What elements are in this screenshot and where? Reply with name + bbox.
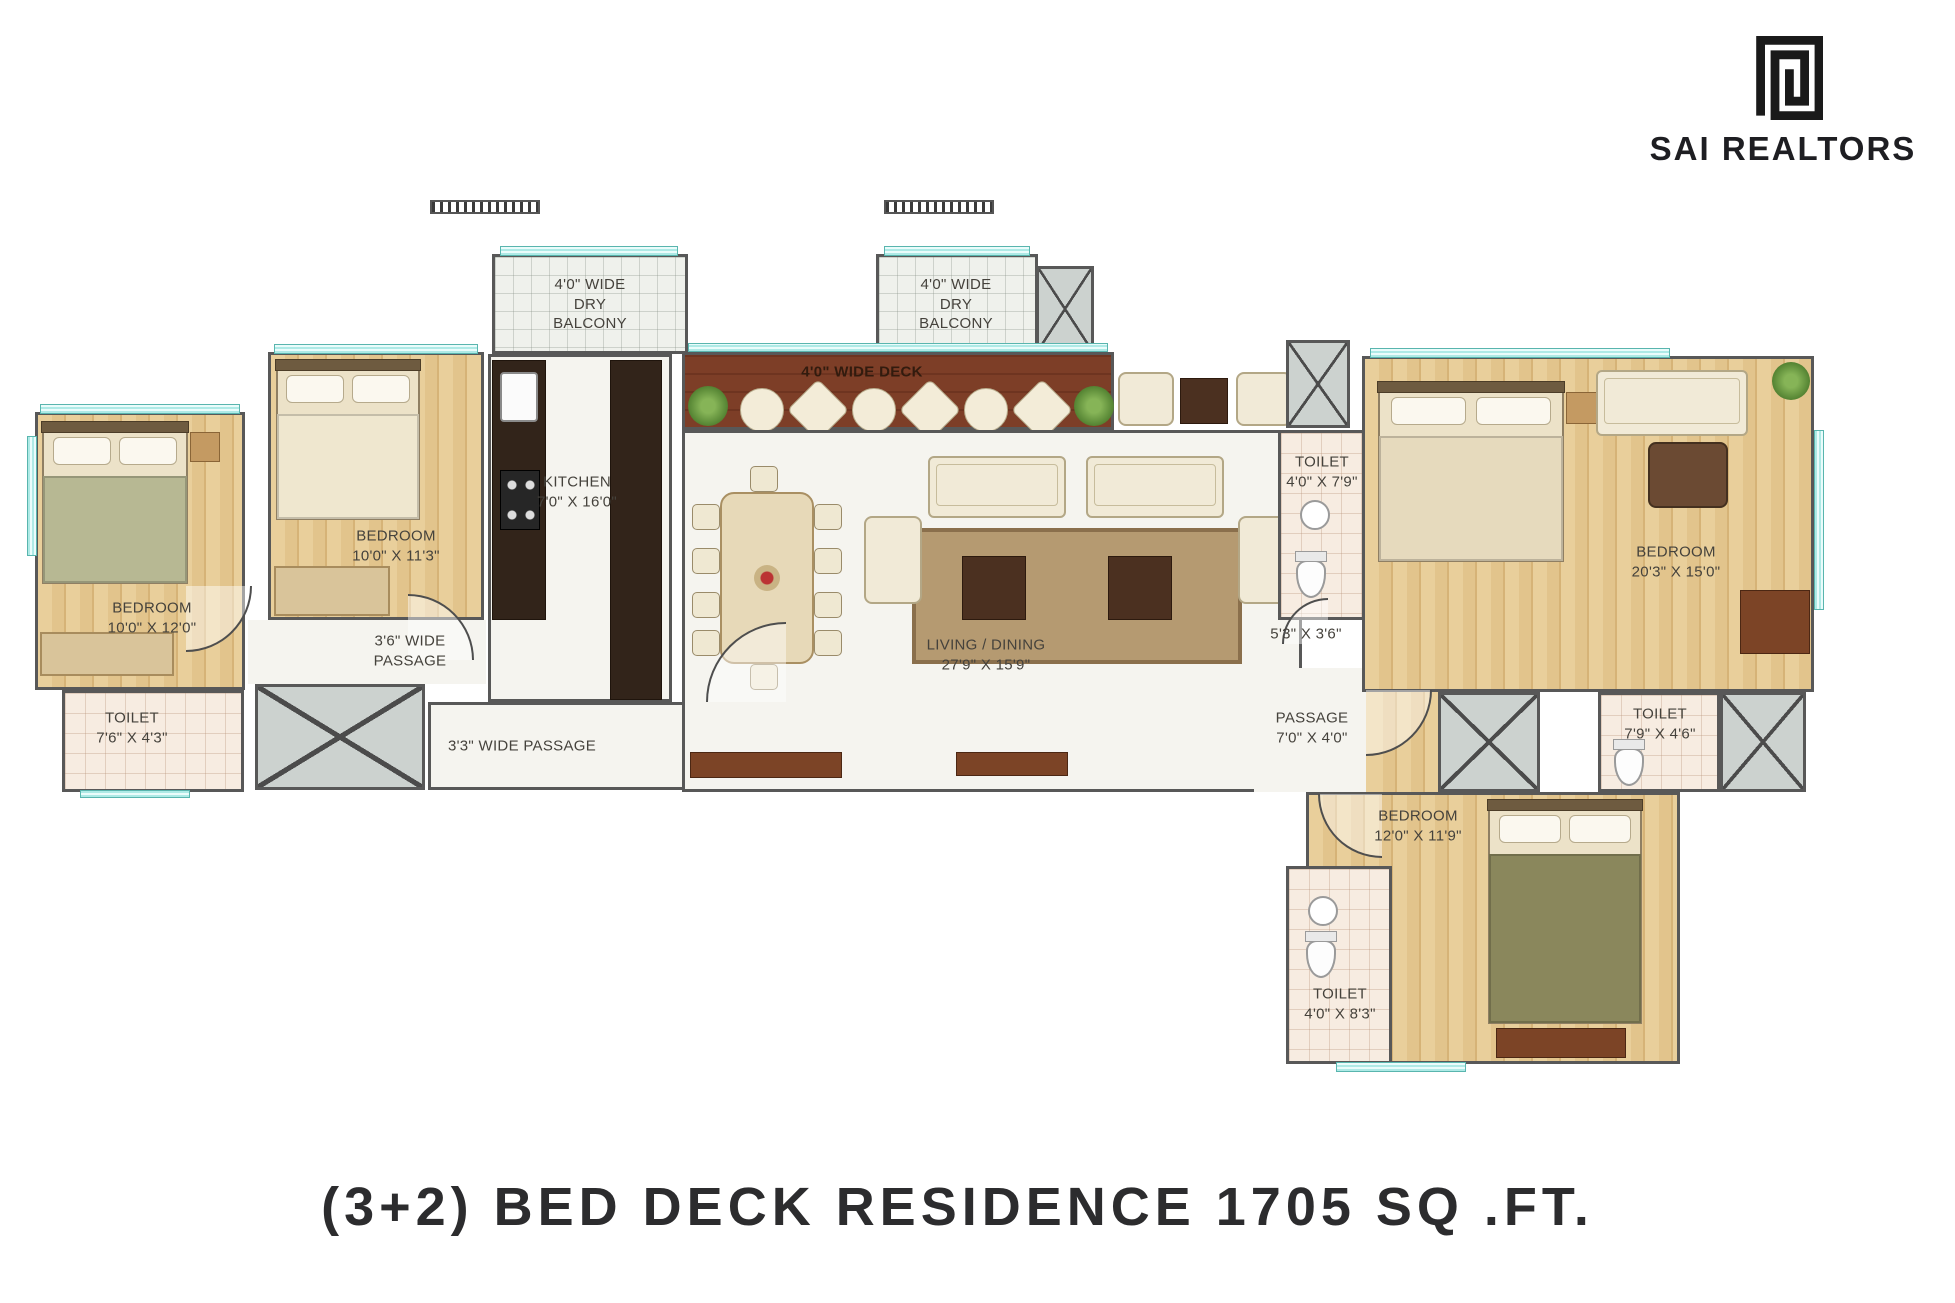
- bed-pillow: [352, 375, 410, 403]
- label-passage-right: PASSAGE 7'0" X 4'0": [1276, 709, 1349, 748]
- label-toilet-bottom: TOILET 4'0" X 8'3": [1304, 985, 1375, 1024]
- label-toilet-master: TOILET 4'0" X 7'9": [1286, 453, 1357, 492]
- wicker-chair: [1236, 372, 1292, 426]
- console-table: [956, 752, 1068, 776]
- sofa: [928, 456, 1066, 518]
- wardrobe: [274, 566, 390, 616]
- master-armchair: [1648, 442, 1728, 508]
- label-passage-36: 3'6" WIDE PASSAGE: [374, 632, 447, 671]
- window: [27, 436, 37, 556]
- deck-plant-left: [688, 386, 728, 426]
- bed-bottom: [1488, 806, 1642, 1024]
- bed-pillow: [119, 437, 178, 465]
- label-niche: 5'3" X 3'6": [1270, 624, 1341, 644]
- duct-top: [1036, 266, 1094, 352]
- label-living-dining: LIVING / DINING 27'9" X 15'9": [927, 636, 1046, 675]
- label-dry-balcony-right: 4'0" WIDE DRY BALCONY: [919, 275, 993, 334]
- dining-chair: [814, 548, 842, 574]
- coffee-table: [1108, 556, 1172, 620]
- washbasin: [1300, 500, 1330, 530]
- window: [1814, 430, 1824, 610]
- deck-cushion: [740, 388, 784, 432]
- dining-chair: [814, 630, 842, 656]
- bedside-table: [1566, 392, 1598, 424]
- lift-shaft-right: [1438, 692, 1540, 792]
- window: [688, 343, 1108, 352]
- window: [1336, 1062, 1466, 1072]
- bed-pillow: [53, 437, 112, 465]
- floor-plan-page: SAI REALTORS: [0, 0, 1955, 1303]
- bed-headboard: [1377, 381, 1565, 393]
- kitchen-counter-right: [610, 360, 662, 700]
- master-plant: [1772, 362, 1810, 400]
- bed-pillow: [286, 375, 344, 403]
- master-sofa: [1596, 370, 1748, 436]
- duct-mid: [1286, 340, 1350, 428]
- deck-plant-right: [1074, 386, 1114, 426]
- label-bedroom-left: BEDROOM 10'0" X 12'0": [108, 599, 197, 638]
- coffee-table: [962, 556, 1026, 620]
- sofa: [1086, 456, 1224, 518]
- lift-shaft-left: [255, 684, 425, 790]
- page-title: (3+2) BED DECK RESIDENCE 1705 SQ .FT.: [0, 1176, 1915, 1238]
- dining-chair: [692, 592, 720, 618]
- floor-plan: BEDROOM 10'0" X 12'0" TOILET 7'6" X 4'3"…: [0, 0, 1955, 1100]
- label-toilet-right: TOILET 7'9" X 4'6": [1624, 705, 1695, 744]
- bed-headboard: [41, 421, 189, 433]
- console-table: [690, 752, 842, 778]
- bed-headboard: [1487, 799, 1643, 811]
- window: [274, 344, 478, 354]
- bed-left: [42, 428, 188, 584]
- bed-blanket: [1379, 436, 1563, 561]
- wardrobe: [40, 632, 174, 676]
- dining-chair: [750, 466, 778, 492]
- dining-chair: [692, 548, 720, 574]
- dining-chair: [692, 504, 720, 530]
- label-bedroom-mid: BEDROOM 10'0" X 11'3": [352, 527, 440, 566]
- kitchen-stove: [500, 470, 540, 530]
- armchair: [864, 516, 922, 604]
- duct-right: [1720, 692, 1806, 792]
- window: [1370, 348, 1670, 358]
- dining-chair: [692, 630, 720, 656]
- wicker-table: [1180, 378, 1228, 424]
- window: [884, 246, 1030, 256]
- bed-pillow: [1569, 815, 1631, 843]
- label-toilet-left: TOILET 7'6" X 4'3": [96, 709, 167, 748]
- dining-chair: [814, 504, 842, 530]
- bed-headboard: [275, 359, 421, 371]
- wicker-chair: [1118, 372, 1174, 426]
- bed-blanket: [1489, 854, 1641, 1023]
- label-deck: 4'0" WIDE DECK: [801, 362, 923, 382]
- bed-pillow: [1391, 397, 1466, 425]
- bed-pillow: [1476, 397, 1551, 425]
- bed-mid: [276, 366, 420, 520]
- window: [80, 790, 190, 798]
- dresser: [1496, 1028, 1626, 1058]
- wall-hatch-left: [430, 200, 540, 214]
- bed-master: [1378, 388, 1564, 562]
- dining-chair: [814, 592, 842, 618]
- bed-blanket: [43, 476, 187, 583]
- label-bedroom-master: BEDROOM 20'3" X 15'0": [1632, 543, 1721, 582]
- kitchen-sink: [500, 372, 538, 422]
- bedside-table: [190, 432, 220, 462]
- label-kitchen: KITCHEN 7'0" X 16'0": [537, 473, 617, 512]
- label-bedroom-bottom: BEDROOM 12'0" X 11'9": [1374, 807, 1462, 846]
- bed-blanket: [277, 414, 419, 519]
- room-toilet-bottom: [1286, 866, 1392, 1064]
- washbasin: [1308, 896, 1338, 926]
- window: [40, 404, 240, 414]
- label-dry-balcony-left: 4'0" WIDE DRY BALCONY: [553, 275, 627, 334]
- deck-cushion: [852, 388, 896, 432]
- master-desk: [1740, 590, 1810, 654]
- window: [500, 246, 678, 256]
- deck-cushion: [964, 388, 1008, 432]
- wall-hatch-right: [884, 200, 994, 214]
- label-passage-33: 3'3" WIDE PASSAGE: [448, 736, 596, 756]
- bed-pillow: [1499, 815, 1561, 843]
